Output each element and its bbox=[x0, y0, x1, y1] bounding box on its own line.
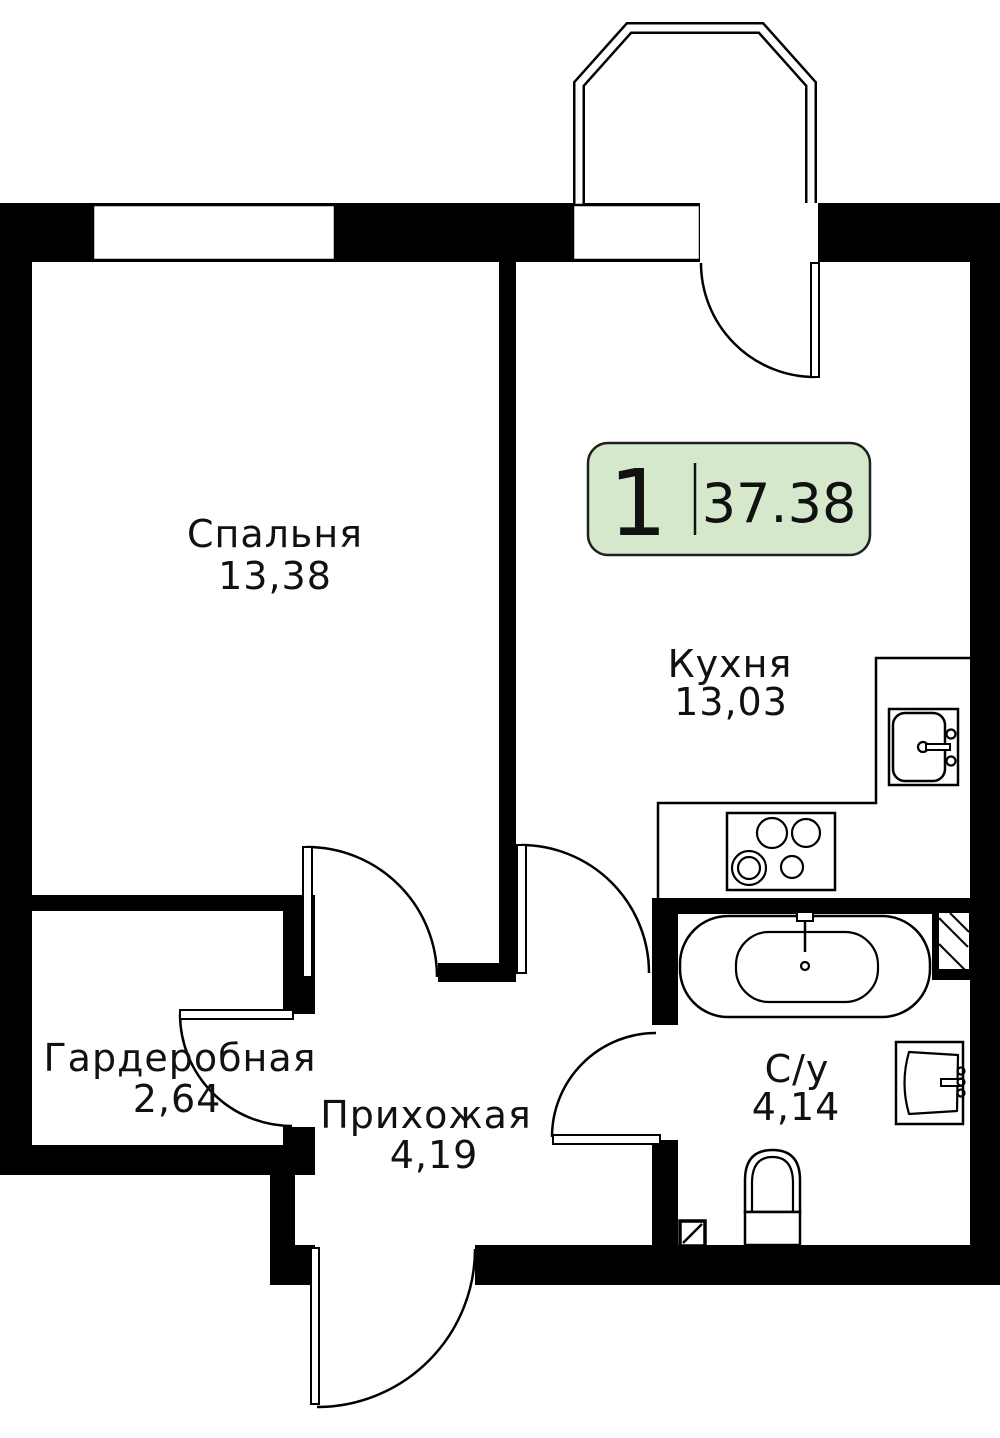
floor-plan-canvas: Спальня 13,38 Кухня 13,03 Гардеробная 2,… bbox=[0, 0, 1000, 1438]
badge-total-area: 37.38 bbox=[702, 472, 857, 535]
kitchen-sink-faucet-spout bbox=[926, 744, 950, 750]
toilet-tank bbox=[745, 1212, 800, 1245]
wall-right bbox=[970, 203, 1000, 1285]
hallway-name: Прихожая bbox=[320, 1093, 532, 1137]
wall-vent-bottom-stub bbox=[932, 970, 970, 980]
room-label-kitchen: Кухня 13,03 bbox=[668, 642, 793, 724]
wall-bath-left-upper bbox=[652, 898, 678, 1025]
floor-plan-page: Спальня 13,38 Кухня 13,03 Гардеробная 2,… bbox=[0, 0, 1000, 1438]
wall-wardrobe-bottom bbox=[0, 1145, 295, 1175]
bathroom-door-arc bbox=[552, 1033, 656, 1137]
bedroom-door-leaf bbox=[303, 847, 312, 977]
pipe-shaft bbox=[680, 1221, 705, 1246]
wash-basin bbox=[896, 1042, 965, 1124]
bedroom-door-arc bbox=[307, 847, 437, 977]
badge-room-count: 1 bbox=[609, 450, 668, 557]
room-label-hallway: Прихожая 4,19 bbox=[320, 1093, 532, 1177]
wall-bedroom-kitchen bbox=[499, 262, 516, 982]
wardrobe-door-leaf bbox=[180, 1010, 293, 1019]
kitchen-area: 13,03 bbox=[674, 680, 788, 724]
entrance-door-leaf bbox=[311, 1248, 319, 1404]
bathroom-door bbox=[552, 1033, 660, 1144]
toilet bbox=[745, 1150, 800, 1245]
wall-wardrobe-right-lower bbox=[283, 1127, 315, 1175]
room-label-bathroom: С/у 4,14 bbox=[752, 1047, 841, 1129]
area-badge: 1 37.38 bbox=[588, 443, 870, 557]
entrance-door bbox=[311, 1245, 475, 1407]
bathtub-faucet bbox=[797, 912, 813, 921]
bathroom-door-leaf bbox=[553, 1135, 660, 1144]
toilet-bowl-outer bbox=[745, 1150, 800, 1212]
balcony-door-arc bbox=[701, 263, 815, 377]
kitchen-door-arc bbox=[521, 845, 649, 973]
balcony-door-leaf bbox=[811, 263, 819, 377]
bay-glazing-outline bbox=[579, 28, 811, 204]
balcony-door-gap bbox=[700, 203, 818, 262]
kitchen-door bbox=[517, 845, 649, 973]
bedroom-name: Спальня bbox=[187, 512, 363, 556]
bay-glazing-inner bbox=[579, 28, 811, 204]
balcony-door bbox=[700, 203, 819, 377]
wall-left bbox=[0, 203, 32, 1175]
room-label-bedroom: Спальня 13,38 bbox=[187, 512, 363, 598]
room-label-wardrobe: Гардеробная 2,64 bbox=[43, 1036, 316, 1121]
balcony-window-glass bbox=[573, 205, 700, 260]
wardrobe-area: 2,64 bbox=[133, 1077, 222, 1121]
wall-bath-left-lower bbox=[652, 1140, 678, 1245]
bedroom-window bbox=[93, 205, 335, 260]
kitchen-sink bbox=[889, 709, 958, 785]
wall-wardrobe-top bbox=[32, 895, 315, 911]
bedroom-area: 13,38 bbox=[218, 554, 332, 598]
entrance-door-gap bbox=[315, 1245, 475, 1285]
bathroom-area: 4,14 bbox=[752, 1085, 841, 1129]
wall-bedroom-hall-stub bbox=[438, 963, 516, 982]
bedroom-window-glass bbox=[93, 205, 335, 260]
kitchen-door-leaf bbox=[517, 845, 526, 973]
bedroom-door bbox=[303, 847, 437, 977]
cooktop bbox=[727, 813, 835, 890]
wardrobe-name: Гардеробная bbox=[43, 1036, 316, 1080]
bathtub bbox=[680, 912, 930, 1017]
ventilation-shaft bbox=[938, 912, 970, 970]
hallway-area: 4,19 bbox=[390, 1133, 479, 1177]
